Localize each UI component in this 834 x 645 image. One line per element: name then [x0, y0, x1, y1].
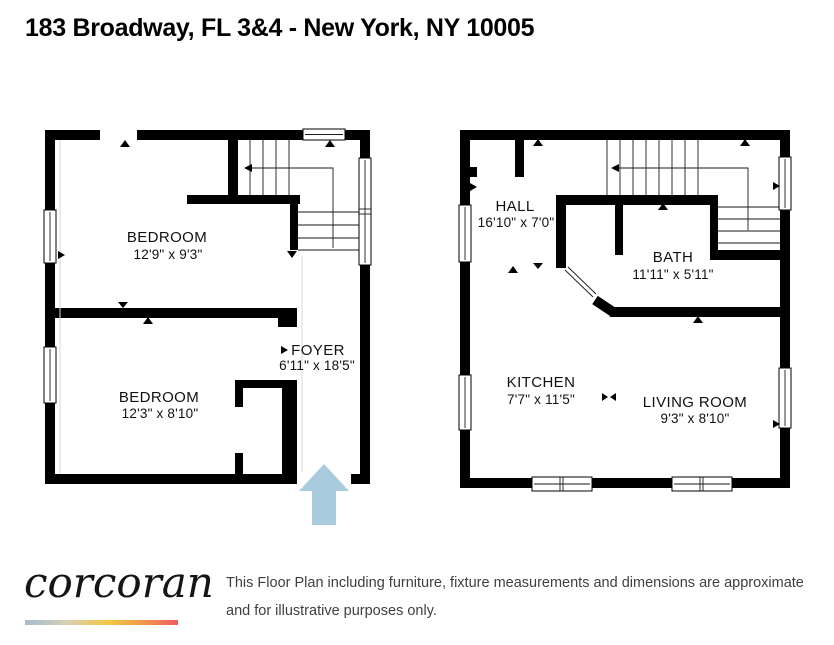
left-plan-floor-lines [60, 140, 302, 474]
room-dims-bedroom-2: 12'3" x 8'10" [122, 406, 199, 421]
right-plan: HALL 16'10" x 7'0" BATH 11'11" x 5'11" K… [459, 130, 791, 491]
room-label-living-room: LIVING ROOM [643, 394, 747, 411]
left-plan-walls [45, 130, 370, 484]
room-dims-foyer: 6'11" x 18'5" [279, 358, 355, 373]
room-dims-hall: 16'10" x 7'0" [478, 215, 555, 230]
floor-plan-canvas: BEDROOM 12'9" x 9'3" BEDROOM 12'3" x 8'1… [0, 0, 834, 645]
left-plan: BEDROOM 12'9" x 9'3" BEDROOM 12'3" x 8'1… [44, 129, 371, 525]
room-label-foyer: FOYER [291, 342, 345, 359]
disclaimer-text: This Floor Plan including furniture, fix… [226, 569, 828, 625]
room-dims-bath: 11'11" x 5'11" [632, 267, 713, 282]
room-label-bath: BATH [653, 249, 694, 266]
floorplan-page: 183 Broadway, FL 3&4 - New York, NY 1000… [0, 0, 834, 645]
bath-open-door [565, 267, 596, 297]
room-dims-living-room: 9'3" x 8'10" [661, 411, 730, 426]
room-label-hall: HALL [495, 198, 534, 215]
room-label-kitchen: KITCHEN [507, 374, 576, 391]
room-label-bedroom-1: BEDROOM [127, 229, 207, 246]
entrance-arrow-icon [299, 464, 349, 525]
right-plan-walls [460, 130, 790, 488]
corcoran-logo: corcoran [24, 560, 184, 606]
right-plan-stairs [607, 140, 780, 243]
room-label-bedroom-2: BEDROOM [119, 389, 199, 406]
room-dims-kitchen: 7'7" x 11'5" [507, 392, 575, 407]
corcoran-gradient-bar [25, 620, 178, 625]
room-dims-bedroom-1: 12'9" x 9'3" [134, 247, 203, 262]
